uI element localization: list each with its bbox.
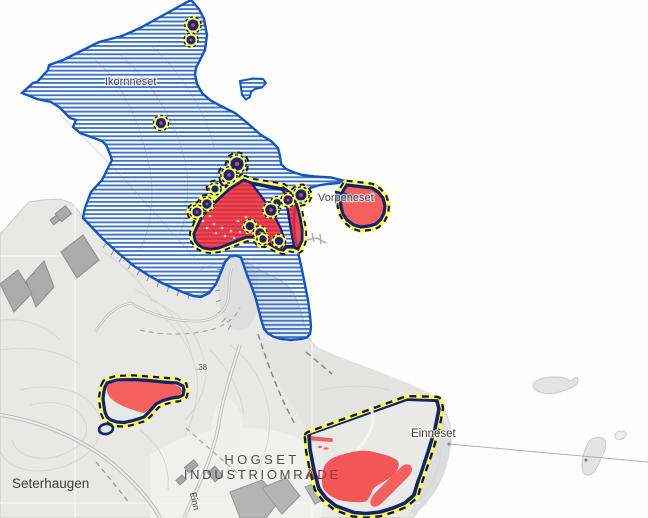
svg-text:Seterhaugen: Seterhaugen <box>12 476 89 491</box>
svg-text:HOGSET: HOGSET <box>224 452 299 467</box>
svg-text:Einneset: Einneset <box>411 428 457 440</box>
svg-text:Ikornneset: Ikornneset <box>105 76 156 88</box>
svg-text:Vorpeneset: Vorpeneset <box>318 192 374 204</box>
svg-text:ÅDE: ÅDE <box>306 467 341 482</box>
svg-text:.38: .38 <box>196 363 208 372</box>
